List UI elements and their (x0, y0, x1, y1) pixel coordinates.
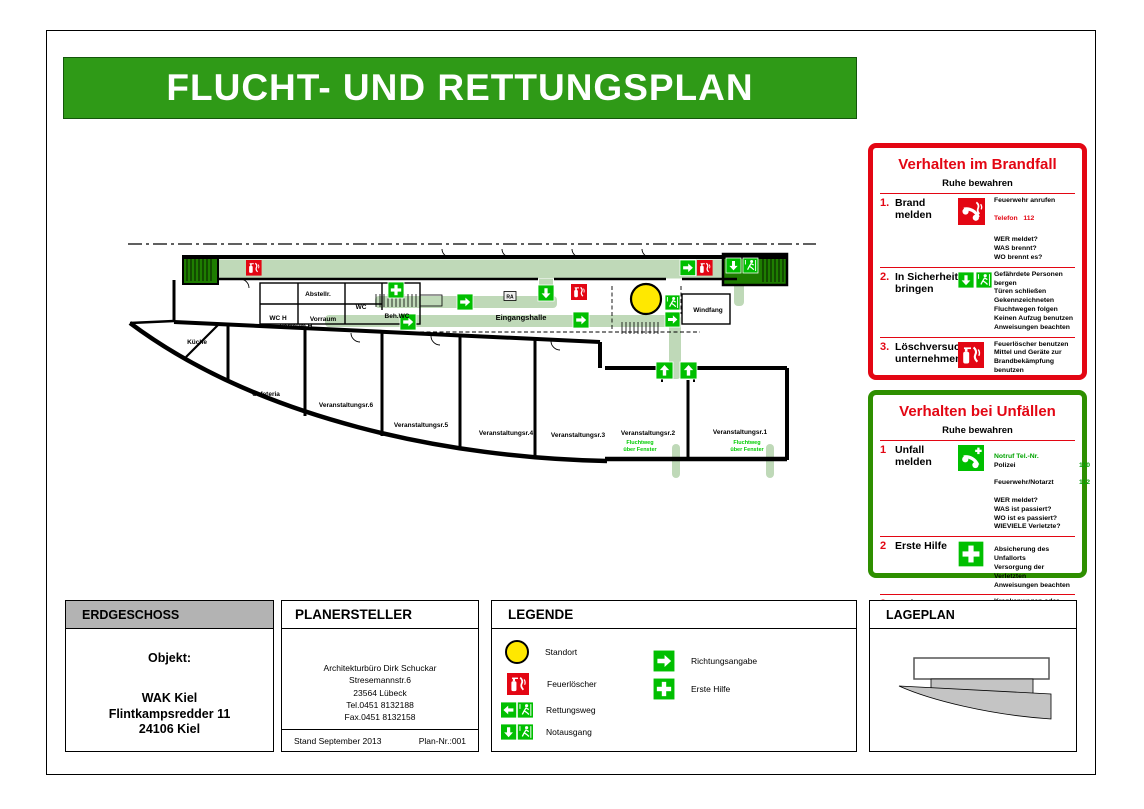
exit-run-icon (665, 295, 680, 310)
first-aid-icon (958, 541, 984, 567)
room-label-v3: Veranstaltungsr.3 (551, 432, 606, 439)
lageplan-map (870, 629, 1076, 751)
verhalten-im-brandfall-panel: Verhalten im Brandfall Ruhe bewahren 1. … (868, 143, 1087, 380)
stand-date: Stand September 2013 (294, 736, 381, 746)
unfaelle-item-1: 1 Unfall melden Notruf Tel.-Nr. Polizei1… (880, 444, 1075, 532)
planersteller-address: Architekturbüro Dirk Schuckar Stresemann… (282, 662, 478, 724)
legend-item-feuerloescher: Feuerlöscher (507, 673, 597, 695)
room-label-v2: Veranstaltungsr.2 (621, 430, 676, 437)
first-aid-icon (388, 282, 404, 298)
room-label-cafeteria: Cafeteria (252, 391, 280, 398)
brandfall-item-3: 3. Löschversuch unternehmen Feuerlöscher… (880, 341, 1075, 376)
fluchtweg-fenster-label: Fluchtweg (626, 440, 653, 446)
staircase-left (183, 256, 218, 284)
page-title: FLUCHT- UND RETTUNGSPLAN (166, 67, 753, 109)
walls (130, 249, 787, 461)
unfaelle-item-2: 2 Erste Hilfe Absicherung des Unfallorts… (880, 540, 1075, 590)
direction-right-icon (457, 294, 473, 310)
exit-run-icon (743, 258, 758, 273)
room-label-v1: Veranstaltungsr.1 (713, 429, 768, 436)
planersteller-header: PLANERSTELLER (282, 601, 478, 629)
erdgeschoss-header: ERDGESCHOSS (66, 601, 273, 629)
lageplan-header: LAGEPLAN (870, 601, 1076, 629)
direction-right-icon (573, 312, 589, 328)
direction-up-icon (680, 362, 697, 379)
exit-run-icon (976, 272, 992, 288)
brandfall-item-1: 1. Brand melden Feuerwehr anrufen Telefo… (880, 197, 1075, 263)
extinguisher-icon (571, 284, 587, 300)
unfaelle-subtitle: Ruhe bewahren (880, 425, 1075, 436)
verhalten-bei-unfaellen-panel: Verhalten bei Unfällen Ruhe bewahren 1 U… (868, 390, 1087, 578)
direction-down-icon (538, 285, 554, 301)
notausgang-icon (500, 724, 534, 740)
room-label-eingangshalle: Eingangshalle (496, 313, 547, 322)
legende-panel: LEGENDE Standort Feuerlöscher Rettungswe… (491, 600, 857, 752)
erste-hilfe-icon (653, 678, 675, 700)
brandfall-title: Verhalten im Brandfall (880, 156, 1075, 173)
floor-plan: RA Küche Cafeteria Veranstaltungsr.6 Ver… (120, 230, 820, 492)
legend-item-erste-hilfe: Erste Hilfe (653, 678, 730, 700)
room-label-wc: WC (356, 304, 367, 311)
extinguisher-icon (507, 673, 529, 695)
phone-fire-icon (958, 198, 985, 225)
fluchtweg-fenster-label: Fluchtweg (733, 440, 760, 446)
exit-down-icon (726, 258, 741, 273)
legende-header: LEGENDE (492, 601, 856, 629)
phone-green-icon (958, 445, 984, 471)
erdgeschoss-panel: ERDGESCHOSS Objekt: WAK Kiel Flintkampsr… (65, 600, 274, 752)
legend-item-rettungsweg: Rettungsweg (500, 702, 596, 718)
room-label-v4: Veranstaltungsr.4 (479, 430, 534, 437)
planersteller-panel: PLANERSTELLER Architekturbüro Dirk Schuc… (281, 600, 479, 752)
lageplan-panel: LAGEPLAN (869, 600, 1077, 752)
direction-up-icon (656, 362, 673, 379)
standort-icon (631, 284, 661, 314)
extinguisher-icon (958, 342, 984, 368)
room-label-vorraum-h: Vorraum H (280, 323, 313, 330)
brandfall-subtitle: Ruhe bewahren (880, 178, 1075, 189)
extinguisher-icon (697, 260, 713, 276)
fluchtweg-fenster-label: über Fenster (730, 447, 764, 453)
legend-item-richtungsangabe: Richtungsangabe (653, 650, 757, 672)
unfaelle-title: Verhalten bei Unfällen (880, 403, 1075, 420)
extinguisher-icon (246, 260, 262, 276)
direction-right-icon (680, 260, 696, 276)
richtung-icon (653, 650, 675, 672)
fluchtweg-fenster-label: über Fenster (623, 447, 657, 453)
room-label-v5: Veranstaltungsr.5 (394, 422, 449, 429)
rettungsweg-icon (500, 702, 534, 718)
standort-icon (505, 640, 529, 664)
direction-right-icon (665, 312, 680, 327)
svg-text:RA: RA (506, 294, 514, 300)
room-label-vorraum: Vorraum (310, 316, 336, 323)
room-label-kueche: Küche (187, 339, 207, 346)
ra-box: RA (504, 292, 516, 301)
legend-item-notausgang: Notausgang (500, 724, 592, 740)
objekt-address: WAK Kiel Flintkampsredder 11 24106 Kiel (66, 691, 273, 738)
brandfall-item-2: 2. In Sicherheit bringen Gefährdete Pers… (880, 271, 1075, 333)
plan-number: Plan-Nr.:001 (419, 736, 466, 746)
legend-item-standort: Standort (505, 640, 577, 664)
objekt-label: Objekt: (66, 651, 273, 665)
plan-title-bar: FLUCHT- UND RETTUNGSPLAN (63, 57, 857, 119)
room-label-v6: Veranstaltungsr.6 (319, 402, 374, 409)
room-label-wc-h: WC H (269, 315, 287, 322)
room-label-beh-wc: Beh.WC (385, 313, 410, 320)
exit-down-icon (958, 272, 974, 288)
room-label-abstellr: Abstellr. (305, 291, 331, 298)
room-label-windfang: Windfang (693, 307, 723, 314)
